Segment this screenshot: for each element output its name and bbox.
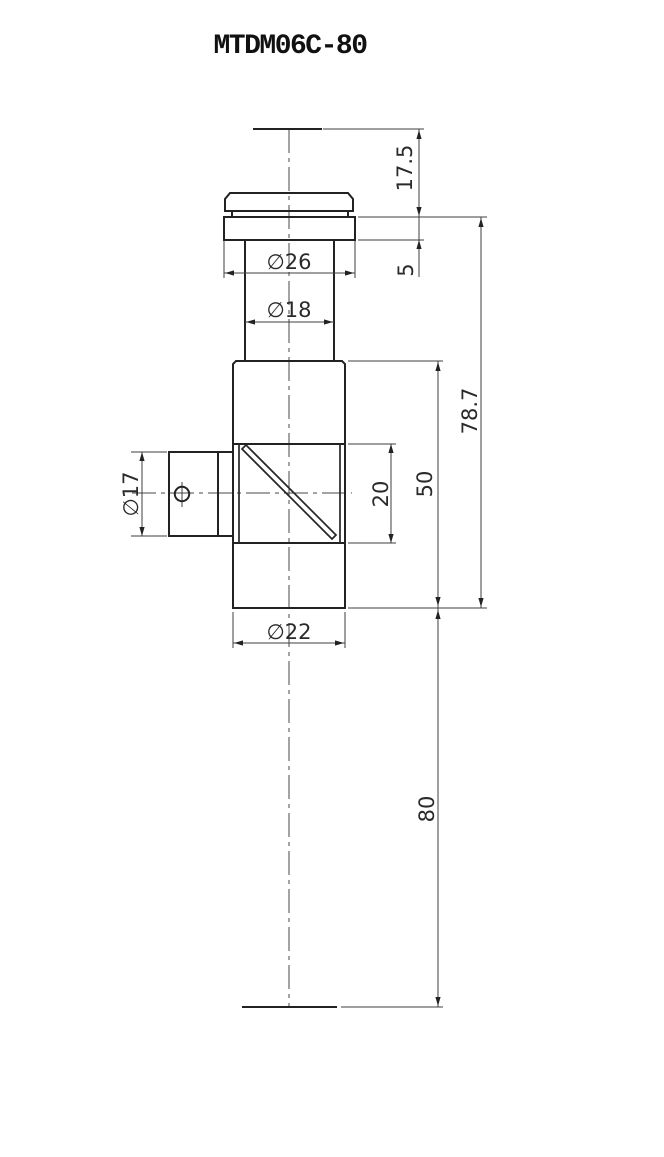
arrow-lower-length-top [435,610,440,619]
arrow-body-length-top [435,362,440,371]
arrow-port-dia-bottom [139,527,144,536]
dimension-labels: ∅26 ∅18 ∅22 ∅17 20 17.5 5 78.7 50 80 [119,145,482,823]
label-window-height: 20 [369,481,393,508]
arrow-tube-dia-right [324,319,333,324]
arrow-cap-height-top [416,130,421,139]
label-body-length: 50 [413,471,437,498]
arrow-port-dia-top [139,452,144,461]
arrow-lower-length-bottom [435,997,440,1006]
label-tube-dia: ∅18 [266,298,311,322]
arrow-flange-thickness [416,240,421,249]
arrow-window-top [388,444,393,453]
label-overall-upper: 78.7 [458,388,482,435]
arrow-tube-dia-left [246,319,255,324]
label-cap-height: 17.5 [393,145,417,192]
label-port-dia: ∅17 [119,471,143,516]
arrow-flange-dia-left [225,270,234,275]
drawing-title: MTDM06C-80 [213,31,367,62]
arrow-body-dia-left [234,640,243,645]
label-body-dia: ∅22 [266,620,311,644]
arrow-cap-height-bottom [416,207,421,216]
label-flange-dia: ∅26 [266,250,311,274]
arrow-flange-dia-right [345,270,354,275]
drawing-sheet: MTDM06C-80 [0,0,664,1157]
arrow-body-length-bottom [435,597,440,606]
arrow-window-bottom [388,534,393,543]
arrow-overall-bottom [478,598,483,607]
label-flange-thickness: 5 [394,263,418,276]
label-lower-length: 80 [415,796,439,823]
centerlines [132,129,352,1007]
arrow-overall-top [478,218,483,227]
part-outline [169,129,355,1007]
arrow-body-dia-right [335,640,344,645]
drawing-canvas: MTDM06C-80 [0,0,664,1157]
side-port-outline [169,452,233,536]
